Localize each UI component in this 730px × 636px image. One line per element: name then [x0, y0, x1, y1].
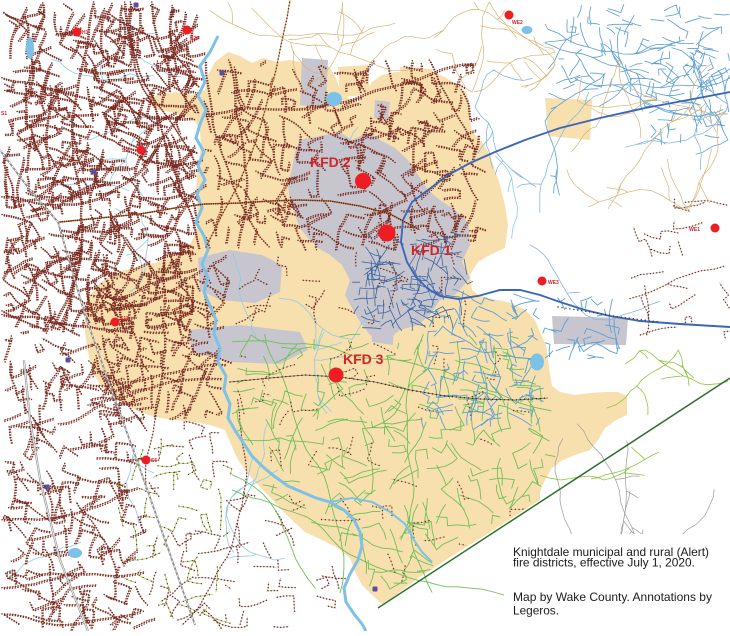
svg-text:KFD 3: KFD 3 [343, 351, 384, 367]
svg-text:S1: S1 [1, 111, 7, 117]
svg-text:KFD 1: KFD 1 [411, 242, 452, 258]
svg-text:KFD 2: KFD 2 [310, 154, 351, 170]
svg-text:S2: S2 [122, 148, 128, 154]
svg-text:WE1: WE1 [689, 227, 700, 233]
svg-text:Legeros.: Legeros. [513, 604, 559, 618]
svg-text:WE2: WE2 [512, 20, 523, 26]
svg-text:S27: S27 [190, 36, 199, 42]
svg-text:S12: S12 [120, 316, 129, 322]
svg-text:Map by Wake County. Annotation: Map by Wake County. Annotations by [513, 590, 712, 604]
svg-text:S6: S6 [151, 458, 157, 464]
svg-text:WE3: WE3 [548, 280, 559, 286]
svg-text:H1: H1 [82, 30, 89, 36]
svg-text:fire districts, effective July: fire districts, effective July 1, 2020. [513, 556, 695, 570]
